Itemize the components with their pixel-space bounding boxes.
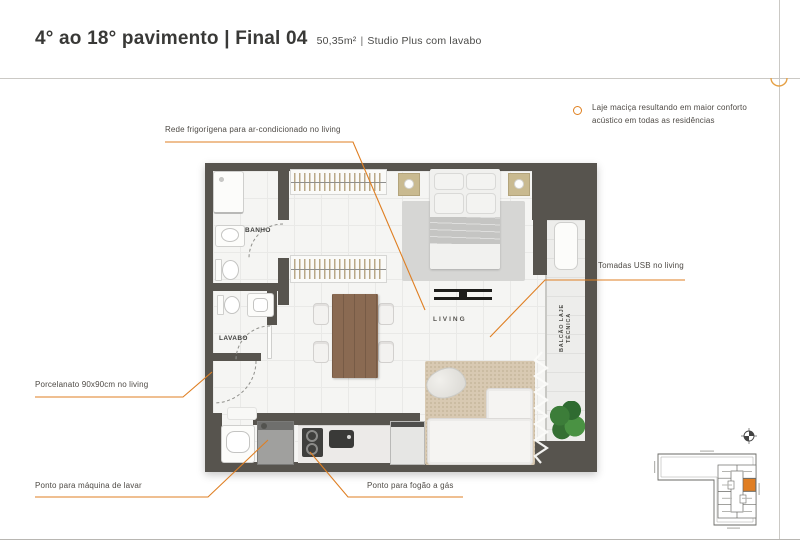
lamp-left: [404, 179, 414, 189]
dining-chair: [378, 303, 394, 325]
building-core: [728, 471, 746, 512]
shower-stall: [213, 171, 244, 214]
wall-left: [205, 163, 213, 472]
washing-machine: [257, 421, 294, 465]
room-label-bath: BANHO: [245, 227, 271, 234]
lot-outline: [658, 454, 756, 525]
wardrobe-rail: [291, 269, 386, 270]
bed-foot-throw: [430, 244, 500, 269]
lamp-right: [514, 179, 524, 189]
note-bullet-icon: [573, 106, 582, 115]
annotation-washer-label: Ponto para máquina de lavar: [35, 481, 142, 490]
building-grid: [718, 465, 756, 518]
balcony-label-line2: TÉCNICA: [566, 304, 573, 352]
room-label-living: LIVING: [433, 316, 467, 323]
annotation-floor-label: Porcelanato 90x90cm no living: [35, 380, 148, 389]
bed-duvet: [430, 217, 500, 244]
lavatory-sink-basin: [253, 298, 268, 312]
kitchen-sink: [329, 430, 354, 448]
unit-type: Studio Plus com lavabo: [367, 35, 481, 47]
dining-chair: [313, 303, 329, 325]
wardrobe-rail: [291, 182, 386, 183]
lot-outline-inner: [661, 457, 753, 522]
laundry-sink-basin: [226, 431, 250, 453]
unit-area-and-type: 50,35m²|Studio Plus com lavabo: [317, 35, 482, 47]
entry-mat: [227, 407, 257, 420]
page-title: 4° ao 18° pavimento | Final 04: [35, 28, 308, 50]
lavatory-door-leaf: [267, 325, 272, 359]
annotation-usb-label: Tomadas USB no living: [598, 261, 684, 270]
lavatory-toilet-bowl: [224, 296, 240, 314]
bath-toilet-bowl: [222, 260, 239, 280]
unit-area: 50,35m²: [317, 35, 357, 47]
bed-pillow: [466, 193, 496, 214]
unit-label-marks: [654, 451, 760, 529]
header: 4° ao 18° pavimento | Final 04 50,35m²|S…: [35, 28, 482, 50]
annotation-stove-label: Ponto para fogão a gás: [367, 481, 453, 490]
ac-condenser-unit: [554, 222, 578, 270]
balcony-label-line1: BALCÃO LAJE: [559, 304, 566, 352]
compass-icon: [741, 428, 757, 444]
bed-pillow: [434, 193, 464, 214]
separator: |: [360, 35, 363, 47]
dining-chair: [313, 341, 329, 363]
plant: [549, 401, 585, 443]
room-label-lavatory: LAVABO: [219, 335, 248, 342]
feature-note: Laje maciça resultando em maior conforto…: [592, 101, 747, 127]
refrigerator: [390, 421, 425, 465]
feature-note-line1: Laje maciça resultando em maior conforto: [592, 101, 747, 114]
room-label-balcony: BALCÃO LAJE TÉCNICA: [543, 288, 589, 368]
lavatory-toilet-tank: [217, 295, 224, 315]
bath-sink-basin: [221, 228, 239, 242]
stove-burner: [306, 430, 318, 442]
top-divider-line: [0, 78, 800, 79]
bed-pillow: [434, 173, 464, 190]
bed-pillow: [466, 173, 496, 190]
cooktop-stove: [302, 428, 323, 457]
dining-table: [332, 294, 378, 378]
dining-chair: [378, 341, 394, 363]
shower-drain: [219, 177, 224, 182]
tv-console: [434, 297, 492, 300]
wardrobe-rack-top: [290, 169, 387, 195]
feature-note-line2: acústico em todas as residências: [592, 114, 747, 127]
wall-bath-lower: [278, 258, 289, 305]
washer-dial: [261, 423, 267, 429]
stove-burner: [306, 443, 318, 455]
bottom-frame-line: [0, 539, 800, 540]
key-plan: [652, 425, 778, 537]
sofa-seat: [427, 418, 533, 465]
bath-toilet-tank: [215, 259, 222, 281]
annotation-ac-label: Rede frigorígena para ar-condicionado no…: [165, 125, 341, 134]
wall-living-balcony: [533, 215, 547, 275]
fridge-handle: [391, 422, 424, 427]
right-frame-line: [779, 0, 780, 539]
wall-top-right-block: [532, 163, 597, 220]
floor-plan: BANHO LAVABO LIV: [205, 163, 597, 472]
wall-bath-upper: [278, 163, 289, 220]
wall-bottom-right-block: [535, 441, 597, 472]
kitchen-faucet: [347, 435, 351, 439]
wall-under-lavatory: [205, 353, 261, 361]
brochure-page: 4° ao 18° pavimento | Final 04 50,35m²|S…: [0, 0, 800, 545]
wardrobe-rack-bottom: [290, 255, 387, 283]
highlighted-unit: [737, 479, 755, 492]
wall-bath-lavatory-divider: [205, 283, 278, 291]
